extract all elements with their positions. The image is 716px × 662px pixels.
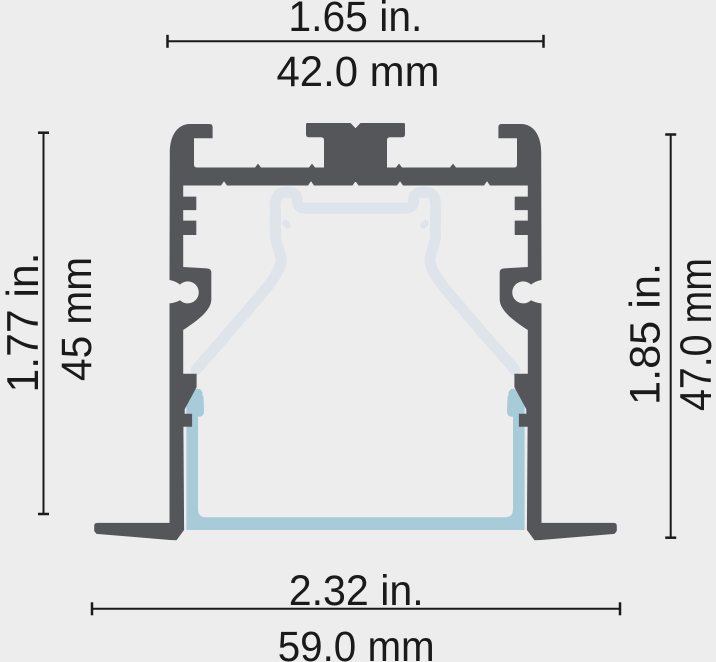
svg-text:1.65 in.: 1.65 in. bbox=[288, 0, 422, 41]
svg-text:1.77 in.: 1.77 in. bbox=[0, 253, 48, 393]
svg-text:42.0 mm: 42.0 mm bbox=[277, 49, 440, 96]
svg-text:2.32 in.: 2.32 in. bbox=[289, 568, 424, 615]
svg-text:47.0 mm: 47.0 mm bbox=[672, 258, 716, 411]
svg-text:59.0 mm: 59.0 mm bbox=[278, 624, 435, 662]
svg-text:45 mm: 45 mm bbox=[54, 257, 101, 381]
svg-text:1.85 in.: 1.85 in. bbox=[623, 263, 670, 405]
